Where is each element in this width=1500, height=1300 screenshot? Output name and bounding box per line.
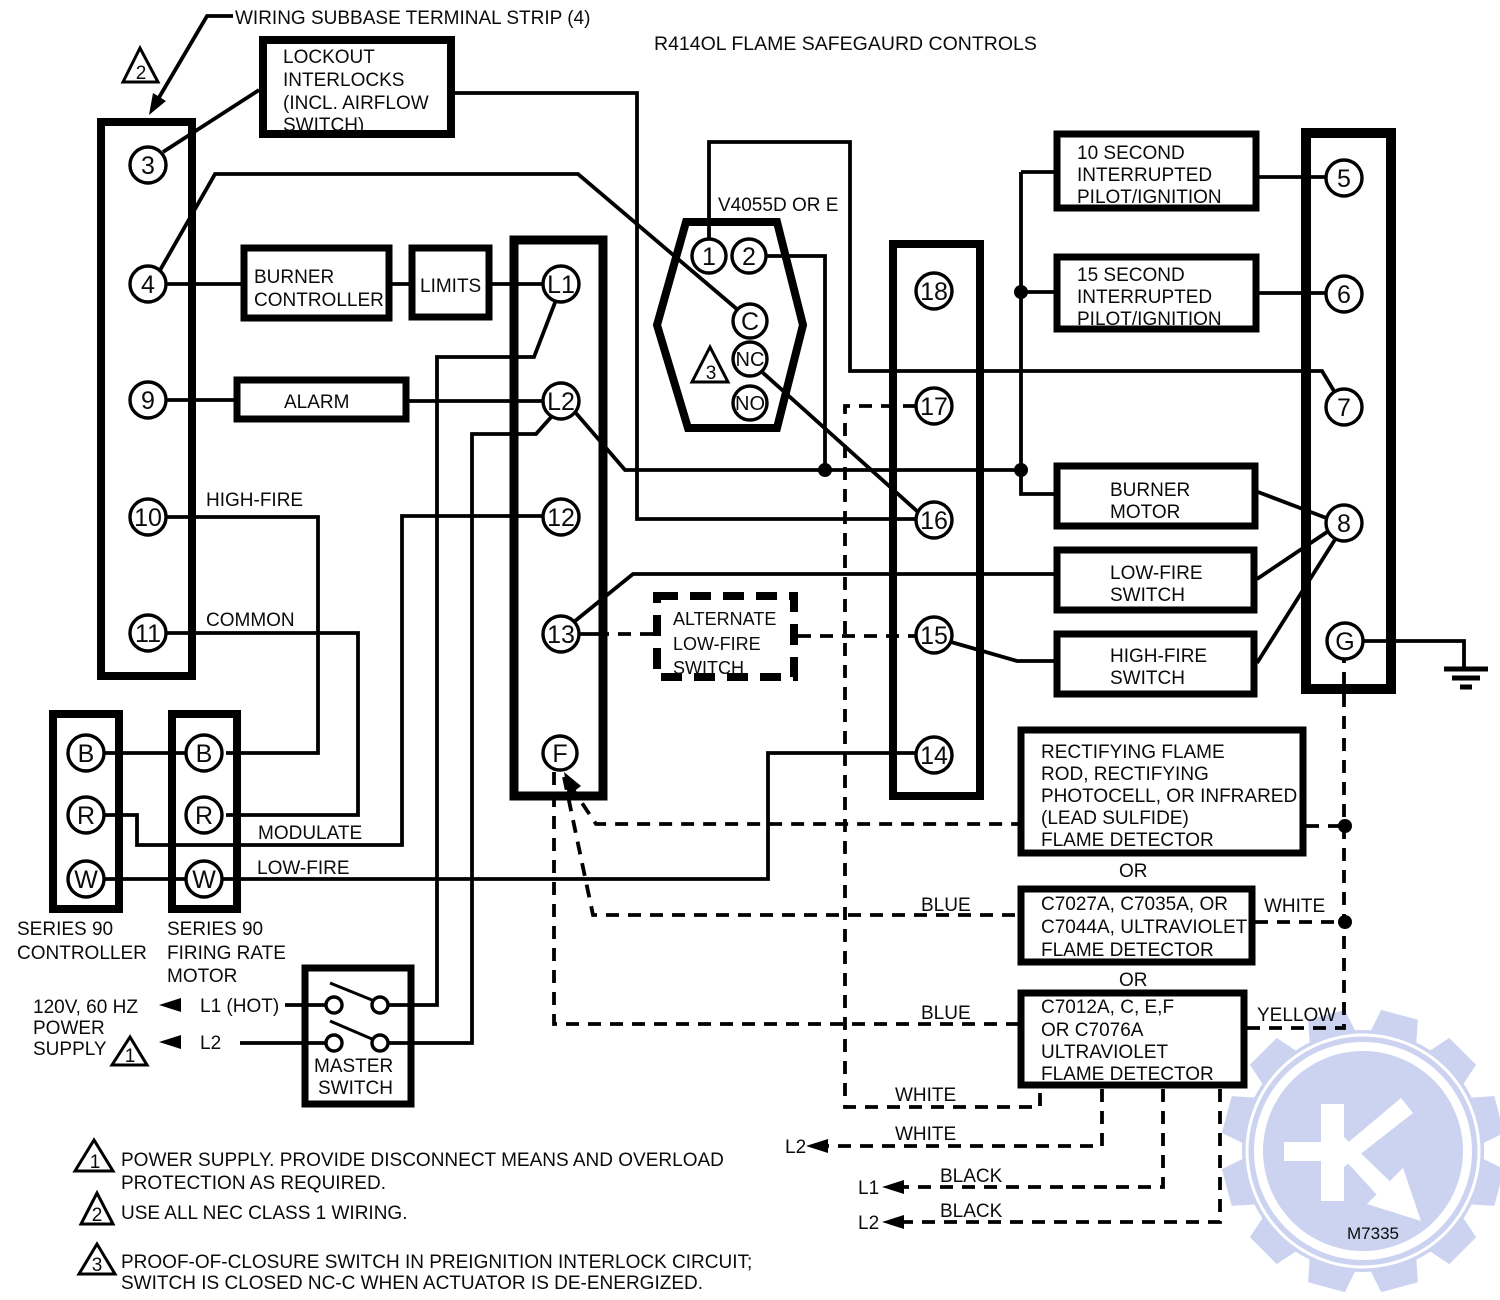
svg-text:LIMITS: LIMITS [420, 276, 481, 297]
svg-text:R: R [77, 802, 95, 830]
svg-text:LOCKOUT: LOCKOUT [283, 47, 375, 68]
svg-text:2: 2 [742, 243, 756, 271]
svg-text:1: 1 [125, 1046, 136, 1067]
svg-text:POWER: POWER [33, 1018, 105, 1039]
svg-text:3: 3 [141, 152, 155, 180]
svg-text:F: F [552, 740, 567, 768]
svg-text:PILOT/IGNITION: PILOT/IGNITION [1077, 187, 1222, 208]
svg-text:MOTOR: MOTOR [167, 966, 237, 987]
svg-text:9: 9 [141, 387, 155, 415]
svg-text:WHITE: WHITE [895, 1124, 956, 1145]
svg-text:INTERRUPTED: INTERRUPTED [1077, 165, 1212, 186]
svg-text:FLAME DETECTOR: FLAME DETECTOR [1041, 940, 1214, 961]
svg-text:LOW-FIRE: LOW-FIRE [257, 858, 350, 879]
svg-text:PHOTOCELL, OR INFRARED: PHOTOCELL, OR INFRARED [1041, 786, 1297, 807]
svg-text:L2: L2 [858, 1213, 879, 1234]
svg-text:L1: L1 [547, 271, 575, 299]
svg-text:17: 17 [920, 393, 948, 421]
svg-text:OR C7076A: OR C7076A [1041, 1020, 1144, 1041]
svg-text:NO: NO [735, 393, 765, 415]
svg-text:4: 4 [141, 271, 155, 299]
svg-text:NC: NC [736, 349, 765, 371]
svg-text:SWITCH: SWITCH [673, 658, 744, 678]
svg-text:PROTECTION AS REQUIRED.: PROTECTION AS REQUIRED. [121, 1173, 386, 1194]
svg-text:SWITCH: SWITCH [318, 1078, 393, 1099]
svg-text:YELLOW: YELLOW [1257, 1005, 1336, 1026]
svg-text:W: W [192, 866, 216, 894]
svg-text:SWITCH IS CLOSED NC-C WHEN ACT: SWITCH IS CLOSED NC-C WHEN ACTUATOR IS D… [121, 1273, 703, 1294]
svg-text:11: 11 [135, 620, 161, 648]
svg-text:FIRING RATE: FIRING RATE [167, 943, 286, 964]
svg-text:BLUE: BLUE [921, 1003, 971, 1024]
svg-text:L1: L1 [858, 1178, 879, 1199]
svg-text:2: 2 [92, 1205, 103, 1226]
svg-text:CONTROLLER: CONTROLLER [254, 290, 384, 311]
svg-text:18: 18 [920, 278, 948, 306]
svg-text:PROOF-OF-CLOSURE SWITCH IN PRE: PROOF-OF-CLOSURE SWITCH IN PREIGNITION I… [121, 1252, 752, 1273]
svg-text:ALTERNATE: ALTERNATE [673, 609, 776, 629]
svg-text:SERIES 90: SERIES 90 [167, 919, 263, 940]
svg-text:(INCL. AIRFLOW: (INCL. AIRFLOW [283, 93, 429, 114]
svg-text:7: 7 [1337, 394, 1351, 422]
svg-text:B: B [196, 740, 213, 768]
svg-text:ALARM: ALARM [284, 392, 349, 413]
svg-text:B: B [78, 740, 95, 768]
svg-text:ULTRAVIOLET: ULTRAVIOLET [1041, 1042, 1168, 1063]
svg-text:2: 2 [136, 63, 147, 84]
svg-text:8: 8 [1337, 510, 1351, 538]
svg-text:10 SECOND: 10 SECOND [1077, 143, 1185, 164]
svg-text:C7044A, ULTRAVIOLET: C7044A, ULTRAVIOLET [1041, 917, 1248, 938]
svg-text:POWER SUPPLY. PROVIDE DISCONNE: POWER SUPPLY. PROVIDE DISCONNECT MEANS A… [121, 1150, 724, 1171]
svg-text:INTERRUPTED: INTERRUPTED [1077, 287, 1212, 308]
svg-text:M7335: M7335 [1347, 1224, 1399, 1243]
svg-text:MOTOR: MOTOR [1110, 502, 1180, 523]
svg-text:(LEAD SULFIDE): (LEAD SULFIDE) [1041, 808, 1189, 829]
svg-text:L2: L2 [200, 1033, 221, 1054]
svg-text:BURNER: BURNER [1110, 480, 1190, 501]
svg-text:L2: L2 [785, 1137, 806, 1158]
svg-text:HIGH-FIRE: HIGH-FIRE [1110, 646, 1207, 667]
svg-text:16: 16 [920, 507, 948, 535]
svg-text:BLUE: BLUE [921, 895, 971, 916]
svg-text:SWITCH): SWITCH) [283, 115, 364, 136]
svg-text:CONTROLLER: CONTROLLER [17, 943, 147, 964]
svg-text:PILOT/IGNITION: PILOT/IGNITION [1077, 309, 1222, 330]
svg-text:10: 10 [134, 504, 162, 532]
svg-text:HIGH-FIRE: HIGH-FIRE [206, 490, 303, 511]
svg-text:12: 12 [547, 504, 575, 532]
svg-text:RECTIFYING FLAME: RECTIFYING FLAME [1041, 742, 1225, 763]
svg-text:MASTER: MASTER [314, 1056, 393, 1077]
svg-text:1: 1 [702, 243, 716, 271]
svg-text:OR: OR [1119, 861, 1148, 882]
svg-text:USE ALL NEC CLASS 1 WIRING.: USE ALL NEC CLASS 1 WIRING. [121, 1203, 408, 1224]
svg-text:FLAME DETECTOR: FLAME DETECTOR [1041, 830, 1214, 851]
svg-text:WHITE: WHITE [895, 1085, 956, 1106]
svg-text:ROD, RECTIFYING: ROD, RECTIFYING [1041, 764, 1209, 785]
svg-text:MODULATE: MODULATE [258, 823, 362, 844]
svg-text:1: 1 [90, 1152, 101, 1173]
svg-text:5: 5 [1337, 165, 1351, 193]
svg-text:L1 (HOT): L1 (HOT) [200, 996, 279, 1017]
svg-text:LOW-FIRE: LOW-FIRE [1110, 563, 1203, 584]
svg-text:C: C [741, 308, 759, 336]
svg-text:SWITCH: SWITCH [1110, 668, 1185, 689]
svg-text:L2: L2 [547, 388, 575, 416]
svg-text:13: 13 [547, 621, 575, 649]
svg-text:BLACK: BLACK [940, 1201, 1003, 1222]
svg-text:R: R [195, 802, 213, 830]
svg-text:SERIES 90: SERIES 90 [17, 919, 113, 940]
svg-text:INTERLOCKS: INTERLOCKS [283, 70, 404, 91]
svg-text:LOW-FIRE: LOW-FIRE [673, 634, 761, 654]
svg-text:COMMON: COMMON [206, 610, 295, 631]
svg-text:120V, 60 HZ: 120V, 60 HZ [33, 997, 138, 1018]
svg-text:C7012A, C, E,F: C7012A, C, E,F [1041, 997, 1174, 1018]
svg-text:R414OL FLAME SAFEGAURD CONTROL: R414OL FLAME SAFEGAURD CONTROLS [654, 33, 1037, 55]
svg-text:WIRING SUBBASE TERMINAL STRIP: WIRING SUBBASE TERMINAL STRIP (4) [235, 8, 590, 29]
svg-text:V4055D OR E: V4055D OR E [718, 195, 838, 216]
svg-text:SWITCH: SWITCH [1110, 585, 1185, 606]
svg-text:BURNER: BURNER [254, 267, 334, 288]
svg-text:SUPPLY: SUPPLY [33, 1039, 107, 1060]
svg-text:OR: OR [1119, 970, 1148, 991]
svg-text:3: 3 [706, 363, 717, 384]
svg-text:WHITE: WHITE [1264, 896, 1325, 917]
svg-text:14: 14 [920, 742, 948, 770]
svg-text:3: 3 [92, 1255, 103, 1276]
svg-text:W: W [74, 866, 98, 894]
svg-text:FLAME DETECTOR: FLAME DETECTOR [1041, 1064, 1214, 1085]
svg-text:15 SECOND: 15 SECOND [1077, 265, 1185, 286]
svg-text:C7027A, C7035A, OR: C7027A, C7035A, OR [1041, 894, 1228, 915]
svg-text:15: 15 [920, 622, 948, 650]
svg-text:BLACK: BLACK [940, 1166, 1003, 1187]
svg-text:G: G [1335, 628, 1354, 656]
svg-text:6: 6 [1337, 281, 1351, 309]
